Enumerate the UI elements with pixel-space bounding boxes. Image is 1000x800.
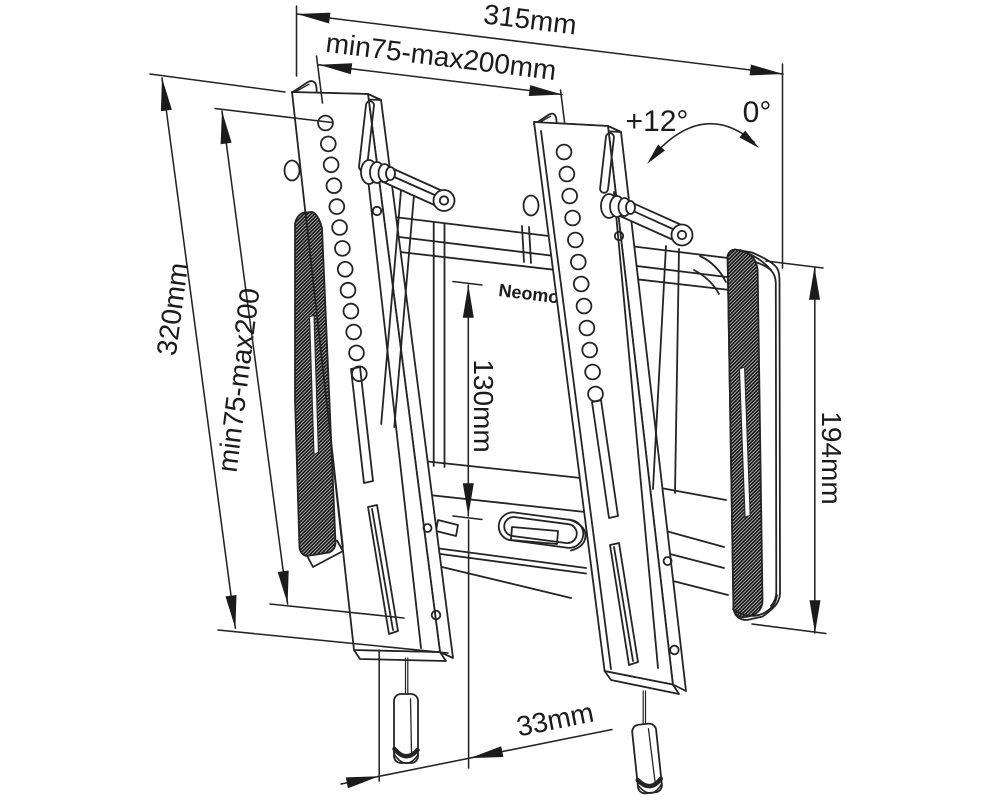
svg-text:130mm: 130mm — [468, 359, 499, 452]
svg-text:0°: 0° — [743, 96, 772, 129]
svg-text:194mm: 194mm — [816, 411, 847, 504]
svg-text:+12°: +12° — [626, 105, 689, 138]
